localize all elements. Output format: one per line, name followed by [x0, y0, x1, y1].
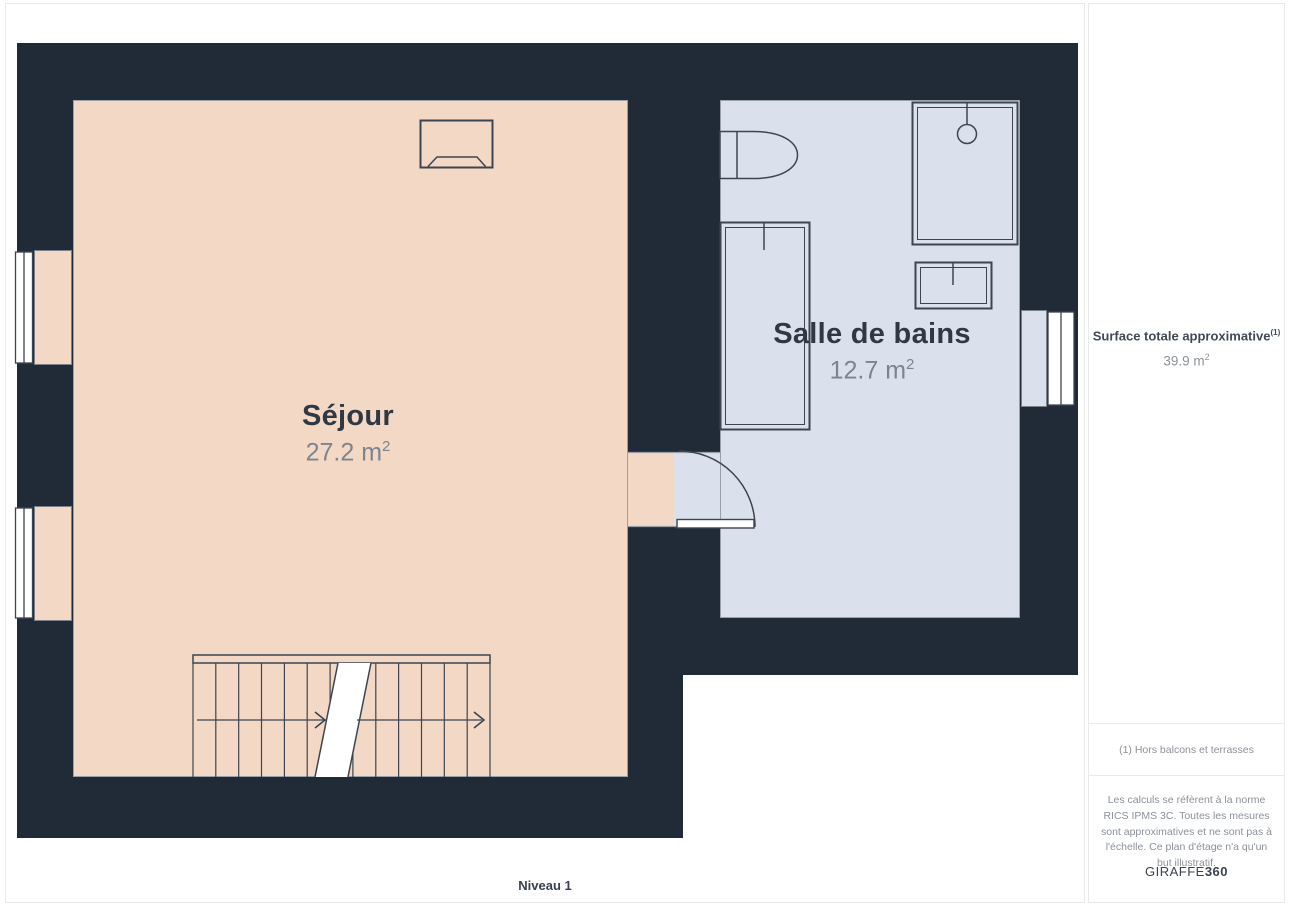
total-area-value: 39.9 m2	[1088, 352, 1285, 369]
window-alcove-upper-left	[34, 250, 72, 365]
room-area-sejour: 27.2 m2	[198, 438, 498, 467]
page: Séjour 27.2 m2 Salle de bains 12.7 m2 Ni…	[0, 0, 1290, 913]
total-area-title: Surface totale approximative(1)	[1088, 328, 1285, 343]
sidebar: Surface totale approximative(1) 39.9 m2 …	[1088, 3, 1285, 903]
door-opening-sejour-side	[628, 452, 673, 527]
room-area-bath: 12.7 m2	[722, 356, 1022, 385]
level-label: Niveau 1	[5, 878, 1085, 893]
total-area-block: Surface totale approximative(1) 39.9 m2	[1088, 328, 1285, 369]
window-alcove-bath	[1021, 310, 1047, 407]
window-alcove-lower-left	[34, 506, 72, 621]
door-opening-bath-side	[673, 452, 720, 527]
footnote: (1) Hors balcons et terrasses	[1088, 723, 1285, 776]
room-label-sejour: Séjour 27.2 m2	[198, 400, 498, 467]
disclaimer: Les calculs se réfèrent à la norme RICS …	[1088, 793, 1285, 872]
room-label-bath: Salle de bains 12.7 m2	[722, 318, 1022, 385]
room-name-bath: Salle de bains	[722, 318, 1022, 351]
brand-logo: GIRAFFE360	[1088, 864, 1285, 879]
room-name-sejour: Séjour	[198, 400, 498, 433]
